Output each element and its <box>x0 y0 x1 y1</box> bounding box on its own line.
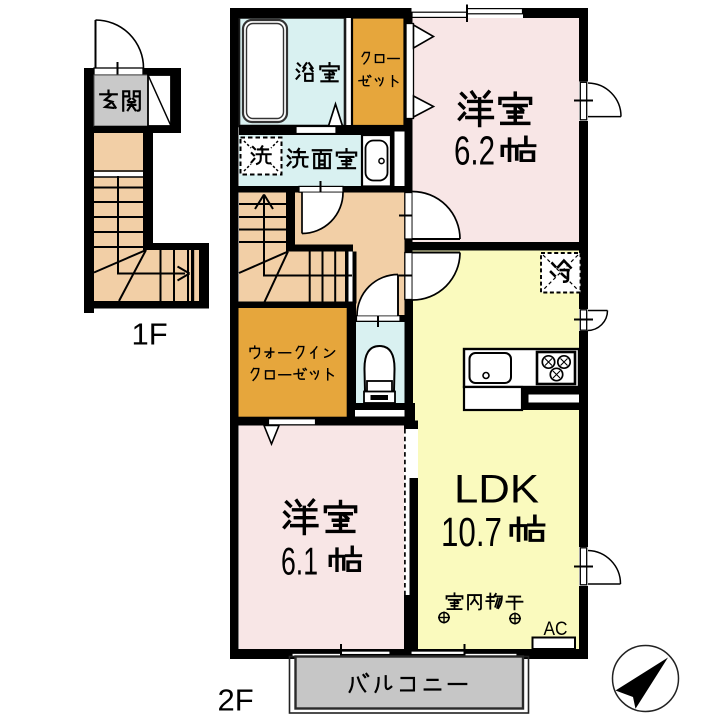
svg-text:LDK: LDK <box>454 468 539 512</box>
svg-text:6.2: 6.2 <box>454 128 495 174</box>
svg-text:10.7: 10.7 <box>441 509 502 555</box>
svg-text:AC: AC <box>544 619 568 640</box>
svg-text:1F: 1F <box>132 317 168 352</box>
svg-text:2F: 2F <box>218 683 254 718</box>
svg-text:6.1: 6.1 <box>281 541 318 584</box>
